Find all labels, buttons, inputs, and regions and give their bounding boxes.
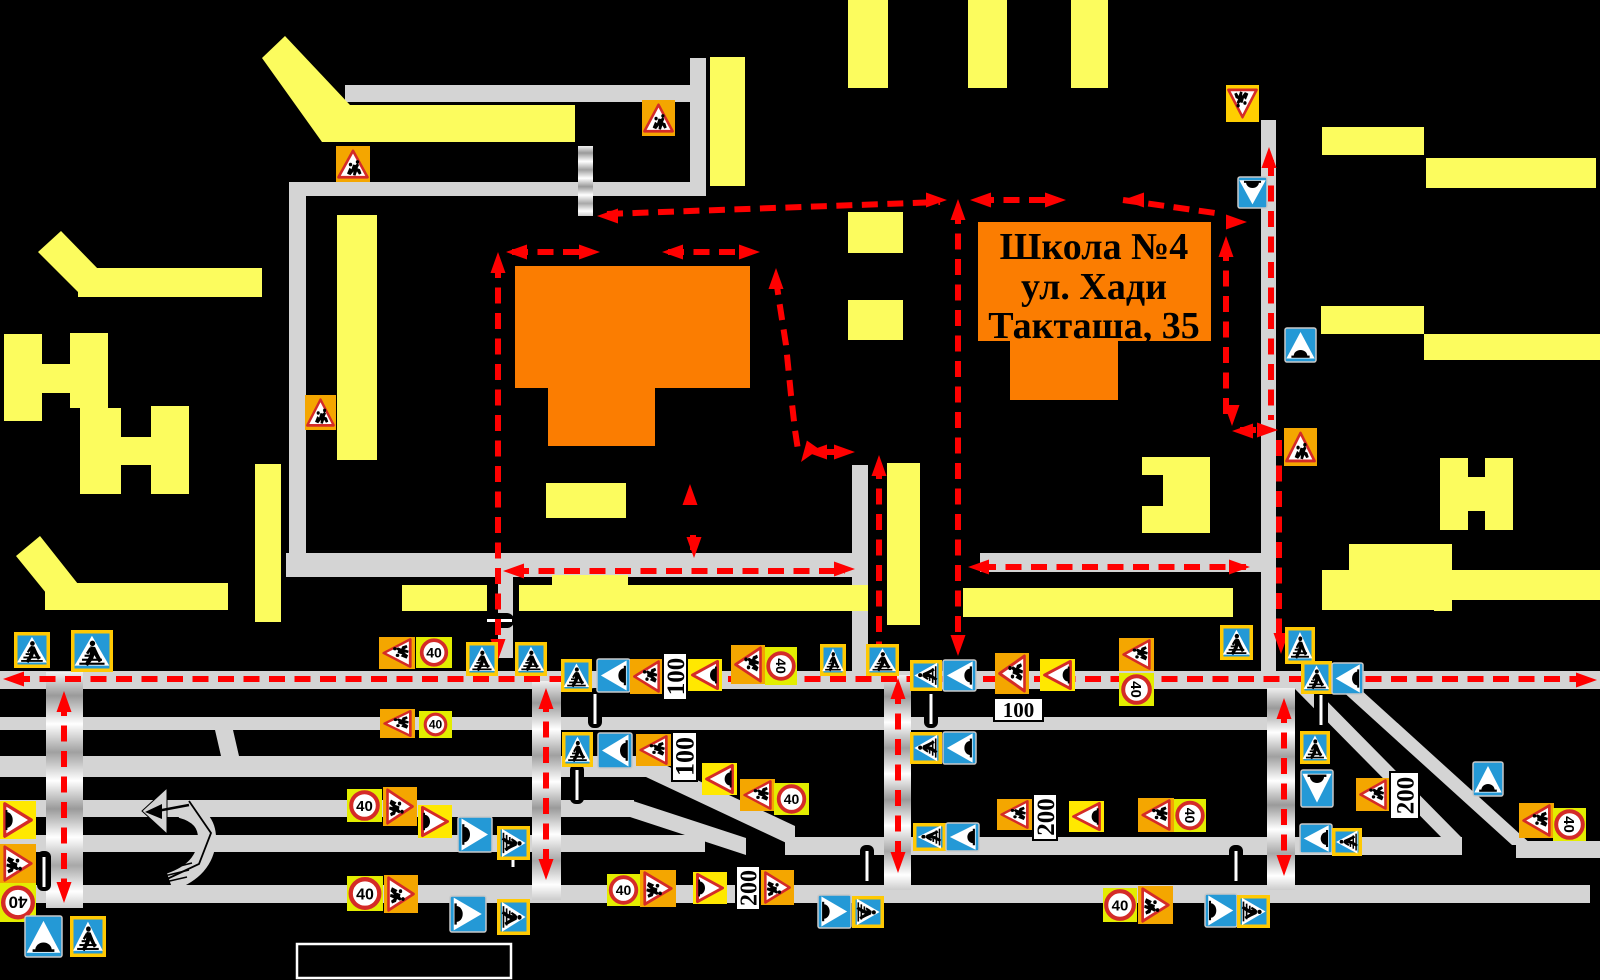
svg-text:40: 40 xyxy=(1182,808,1198,824)
svg-text:200: 200 xyxy=(1393,777,1420,815)
svg-text:40: 40 xyxy=(356,886,374,903)
svg-text:200: 200 xyxy=(737,870,763,906)
svg-text:100: 100 xyxy=(1003,698,1035,722)
svg-text:40: 40 xyxy=(1112,898,1129,915)
svg-text:100: 100 xyxy=(671,737,700,776)
svg-text:40: 40 xyxy=(426,645,442,661)
svg-text:40: 40 xyxy=(773,658,789,674)
svg-text:40: 40 xyxy=(9,893,28,912)
svg-text:Такташа, 35: Такташа, 35 xyxy=(988,305,1200,347)
svg-text:200: 200 xyxy=(1033,798,1060,836)
svg-text:40: 40 xyxy=(784,791,800,807)
svg-text:ул. Хади: ул. Хади xyxy=(1021,266,1167,308)
svg-text:40: 40 xyxy=(356,798,373,815)
svg-text:40: 40 xyxy=(429,718,443,732)
svg-text:40: 40 xyxy=(616,882,632,898)
svg-text:40: 40 xyxy=(1560,816,1577,833)
svg-text:40: 40 xyxy=(1127,681,1144,698)
svg-text:Школа №4: Школа №4 xyxy=(1000,226,1189,268)
svg-text:100: 100 xyxy=(663,658,690,696)
